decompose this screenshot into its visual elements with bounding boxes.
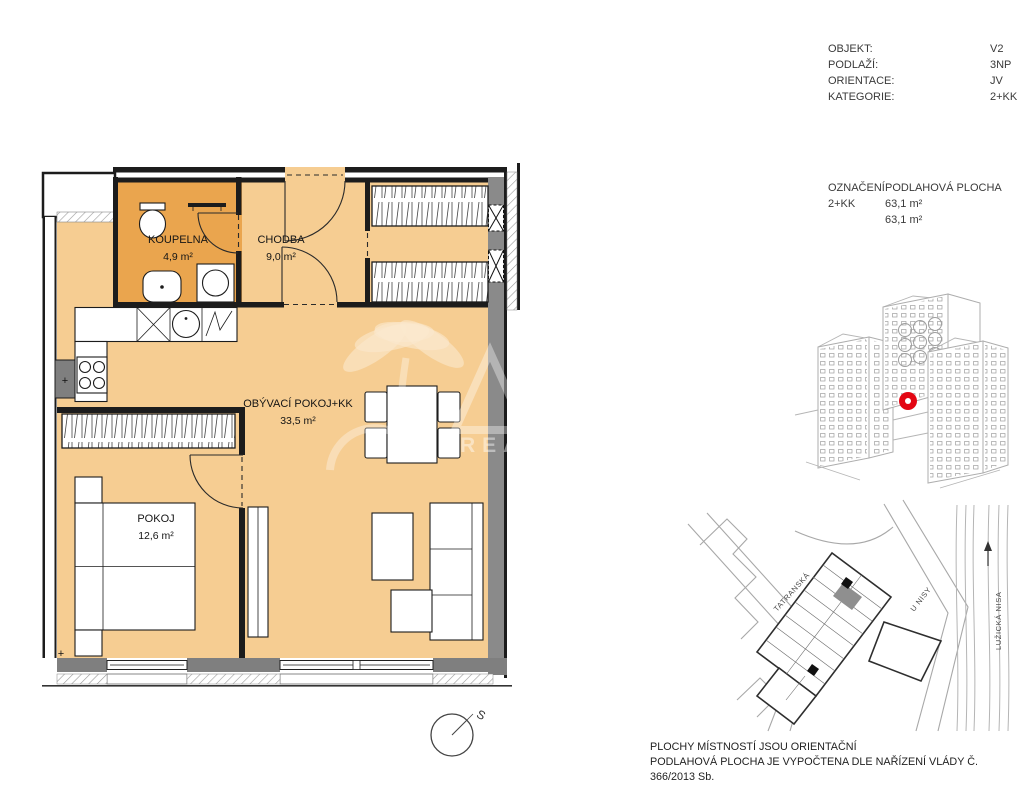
toilet-tank xyxy=(140,203,165,210)
floor-plan: + + xyxy=(42,163,525,756)
room-label-obyvaci: OBÝVACÍ POKOJ+KK xyxy=(243,397,353,410)
street-label-u-nisy: U NISY xyxy=(908,585,933,613)
dining-table-icon xyxy=(387,386,437,463)
unit-info-panel: OBJEKT: V2 PODLAŽÍ: 3NP ORIENTACE: JV KA… xyxy=(828,41,1023,105)
info-row-kategorie: KATEGORIE: 2+KK xyxy=(828,89,1023,105)
info-row-objekt: OBJEKT: V2 xyxy=(828,41,1023,57)
sofa-corner-seat xyxy=(391,590,432,632)
floor-area-header: PODLAHOVÁ PLOCHA xyxy=(885,180,1002,196)
room-area-koupelna: 4,9 m² xyxy=(163,251,193,263)
site-map: TATRANSKÁ U NISY LUŽICKÁ NISA xyxy=(688,500,1009,731)
area-value-row-2: 63,1 m² xyxy=(828,212,1002,228)
floor-area-value: 63,1 m² xyxy=(885,196,922,212)
towel-rail-icon xyxy=(188,203,226,207)
room-area-chodba: 9,0 m² xyxy=(266,251,296,263)
wardrobe-icon-2 xyxy=(372,262,488,302)
road-u-nisy xyxy=(884,504,948,731)
nightstand-icon-2 xyxy=(75,630,102,656)
info-value: 2+KK xyxy=(990,89,1017,105)
left-wall xyxy=(43,217,57,658)
street-label-luzicka-nisa: LUŽICKÁ NISA xyxy=(994,592,1003,650)
room-label-koupelna: KOUPELNA xyxy=(148,234,209,246)
column-mark: + xyxy=(62,375,68,387)
area-header-row: OZNAČENÍ PODLAHOVÁ PLOCHA xyxy=(828,180,1002,196)
info-row-podlazi: PODLAŽÍ: 3NP xyxy=(828,57,1023,73)
info-value: JV xyxy=(990,73,1003,89)
compass: S xyxy=(431,707,488,756)
info-label: OBJEKT: xyxy=(828,41,990,57)
disclaimer-line-1: PLOCHY MÍSTNOSTÍ JSOU ORIENTAČNÍ xyxy=(650,740,1024,755)
room-area-pokoj: 12,6 m² xyxy=(138,530,174,542)
floor-plan-sheet: + + xyxy=(0,0,1024,779)
info-value: V2 xyxy=(990,41,1003,57)
sofa-icon xyxy=(430,503,483,640)
kitchen-counter xyxy=(75,308,237,342)
compass-north-label: S xyxy=(474,707,488,723)
disclaimer-line-2: PODLAHOVÁ PLOCHA JE VYPOČTENA DLE NAŘÍZE… xyxy=(650,755,1024,785)
building-footprint xyxy=(757,553,941,724)
side-strip-floor xyxy=(57,222,117,307)
sink-basin-icon xyxy=(173,311,200,338)
map-north-arrow xyxy=(984,541,992,566)
sheet-graphics: + + xyxy=(0,0,1024,779)
wardrobe-icon xyxy=(372,186,488,226)
info-label: KATEGORIE: xyxy=(828,89,990,105)
area-summary-panel: OZNAČENÍ PODLAHOVÁ PLOCHA 2+KK 63,1 m² 6… xyxy=(828,180,1002,228)
closet-icon xyxy=(62,414,235,448)
designation-header: OZNAČENÍ xyxy=(828,180,885,196)
designation-value: 2+KK xyxy=(828,196,885,212)
hatch-strip-right xyxy=(507,172,517,310)
room-label-chodba: CHODBA xyxy=(257,234,305,246)
coffee-table-icon xyxy=(372,513,413,580)
adjacent-space xyxy=(43,173,115,217)
room-label-pokoj: POKOJ xyxy=(137,513,174,525)
info-label: PODLAŽÍ: xyxy=(828,57,990,73)
info-row-orientace: ORIENTACE: JV xyxy=(828,73,1023,89)
chair-icon xyxy=(365,392,387,422)
hatch-strip-top-left xyxy=(57,212,115,222)
nightstand-icon xyxy=(75,477,102,503)
disclaimer-footer: PLOCHY MÍSTNOSTÍ JSOU ORIENTAČNÍ PODLAHO… xyxy=(650,740,1024,785)
info-value: 3NP xyxy=(990,57,1011,73)
info-label: ORIENTACE: xyxy=(828,73,990,89)
watermark-text: REA xyxy=(460,434,525,457)
floor-area-value-2: 63,1 m² xyxy=(885,212,922,228)
building-3d-render xyxy=(795,294,1008,488)
area-value-row: 2+KK 63,1 m² xyxy=(828,196,1002,212)
room-area-obyvaci: 33,5 m² xyxy=(280,415,316,427)
